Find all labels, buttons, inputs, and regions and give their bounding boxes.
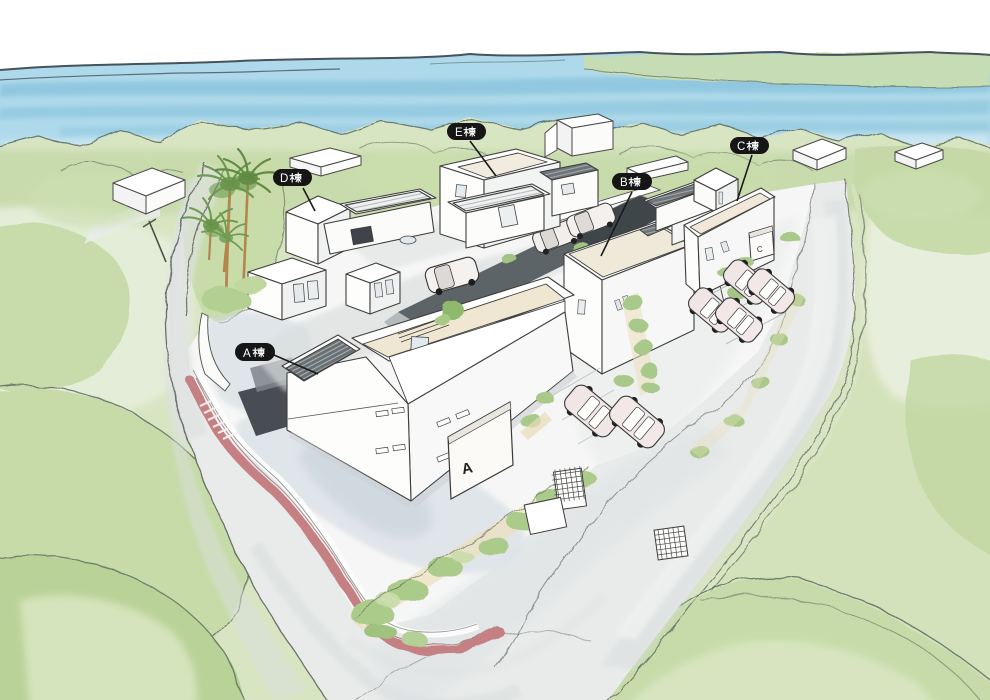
svg-text:A: A [243,348,251,360]
svg-text:E: E [455,127,463,139]
svg-text:C: C [737,141,745,153]
svg-text:B: B [620,177,628,189]
svg-text:D: D [280,173,288,185]
